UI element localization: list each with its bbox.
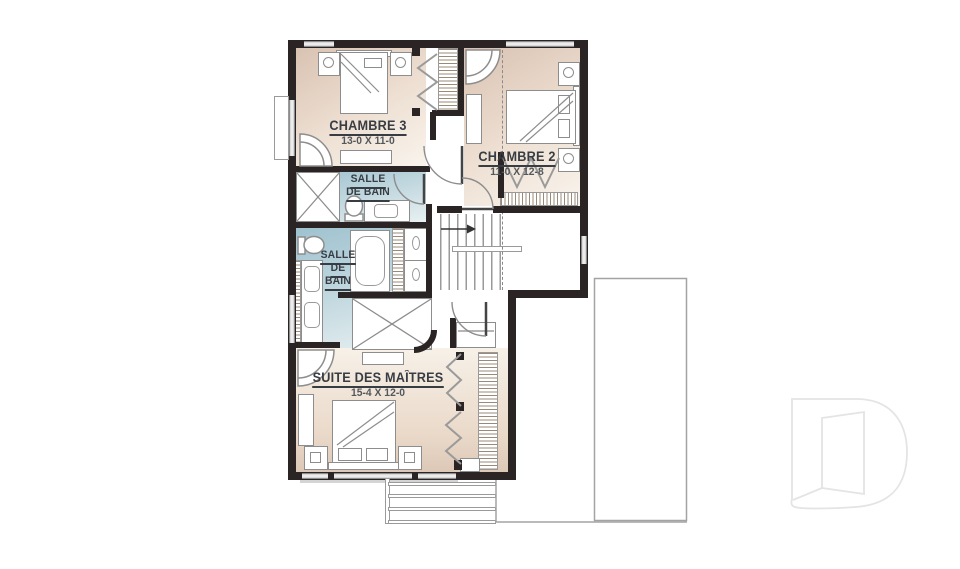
wall [508,290,588,298]
closet-shelves-chambre2 [500,192,578,206]
room-dims-chambre2: 11-0 X 12-8 [461,167,574,178]
sink-basin [304,302,320,328]
master-shower [352,298,432,350]
cabinet-handle [412,236,420,250]
door-opening [426,172,432,204]
window-bay [274,96,289,160]
window [304,41,334,47]
cabinet-handle [412,268,420,281]
closet-floor-box [460,458,480,472]
pillow [364,58,382,68]
dresser [466,94,482,144]
dresser [362,352,404,365]
dresser [298,394,314,446]
railing-bar [388,494,496,498]
railing-bar [388,482,496,486]
room-label-chambre2: CHAMBRE 2 [461,150,574,167]
wall [450,318,456,348]
wall [338,292,432,298]
wall [292,222,432,228]
window [289,295,295,343]
shower [296,172,340,222]
room-dims-chambre3: 13-0 X 11-0 [312,136,425,147]
closet-niche [456,322,496,348]
garage-roof-outline [496,279,687,523]
lamp-icon [395,57,406,68]
wall [412,108,420,116]
window [334,473,412,479]
pillow [558,95,570,114]
room-label-chambre3: CHAMBRE 3 [312,119,425,136]
lamp-icon [310,452,321,463]
room-label-bain2-line3: BAIN [310,276,366,291]
lamp-icon [323,57,334,68]
pillow [558,119,570,138]
stair-handrail [452,246,522,252]
wall [456,352,464,360]
wall [292,342,340,348]
room-name: DE BAIN [346,187,390,202]
room-name: SUITE DES MAÎTRES [313,371,444,388]
wall [458,48,464,116]
lamp-icon [404,452,415,463]
dresser [340,150,392,164]
floor-plan: CHAMBRE 3 13-0 X 11-0 CHAMBRE 2 11-0 X 1… [0,0,960,569]
window [302,473,328,479]
door-opening [430,140,436,172]
room-label-suite: SUITE DES MAÎTRES [303,371,453,388]
room-name: BAIN [325,276,351,291]
wall [412,48,420,56]
wall [292,166,432,172]
pillow [338,448,362,461]
drummond-logo-watermark [791,399,907,509]
wall [437,206,588,213]
railing-bar [388,520,496,524]
wall [508,290,516,480]
room-dims-suite: 15-4 X 12-0 [303,388,453,399]
stair-treads [440,214,504,290]
room-label-bain1-line2: DE BAIN [340,187,396,202]
sink-basin [374,204,398,218]
walkin-closet-shelves-suite [478,352,498,470]
window [581,236,587,264]
window [289,100,295,156]
railing-bar [388,507,496,511]
wall [456,402,464,411]
bed-headboard [328,462,400,470]
pillow [366,448,388,461]
lamp-icon [563,67,574,78]
door-opening [462,206,493,213]
window [506,41,574,47]
room-name: CHAMBRE 2 [478,150,555,167]
window [418,473,456,479]
wall [454,460,462,470]
room-name: CHAMBRE 3 [329,119,406,136]
floor-hall [432,112,464,207]
linen-shelves-bain2 [392,228,404,292]
closet-shelf-line [458,330,494,332]
closet-shelves-chambre3 [438,48,458,114]
